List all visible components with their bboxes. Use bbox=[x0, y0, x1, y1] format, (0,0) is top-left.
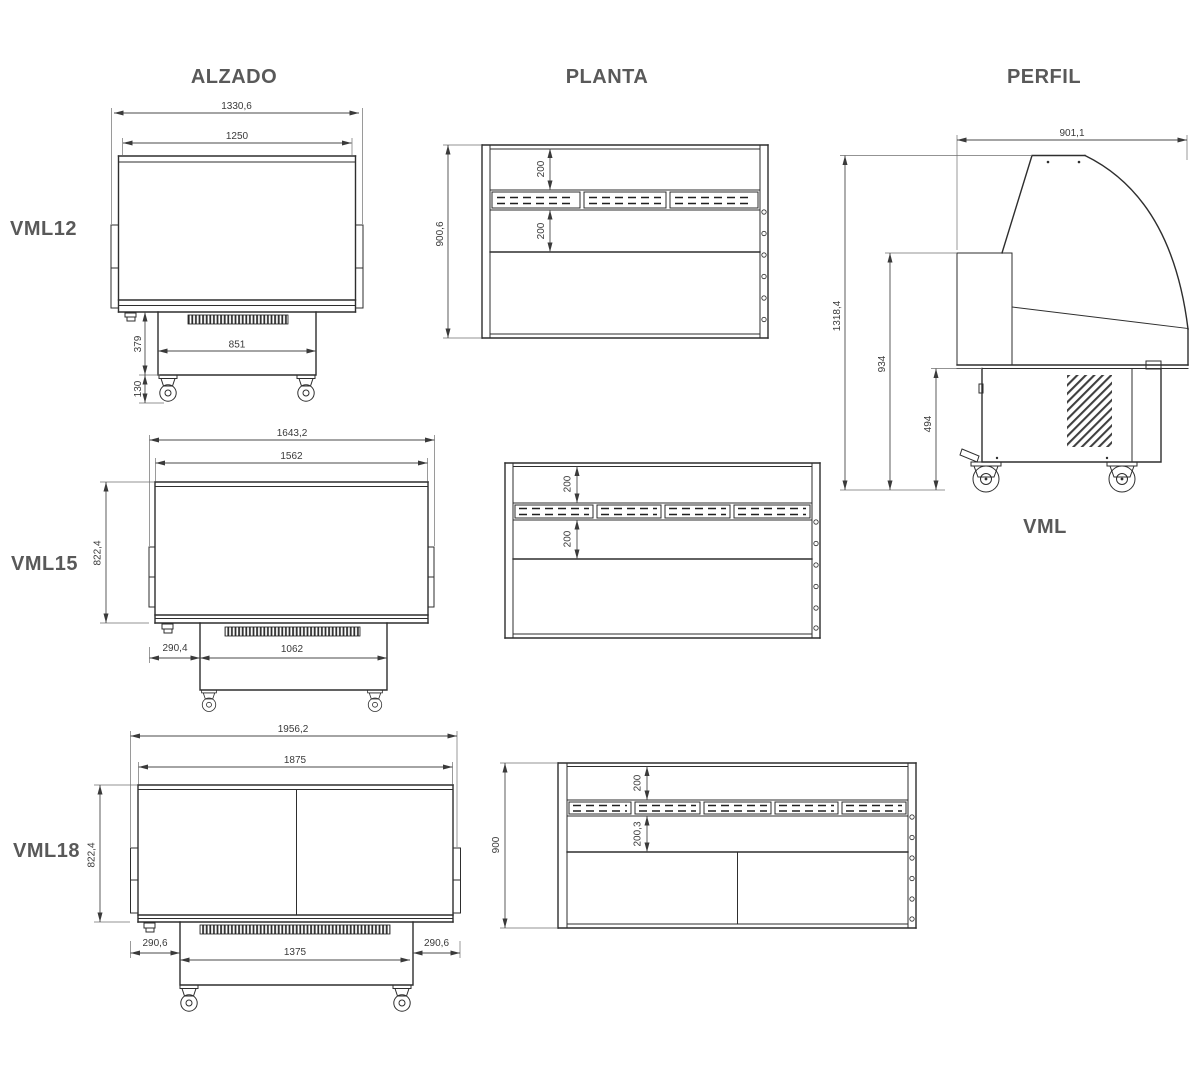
caster bbox=[368, 690, 383, 711]
dim-vml18-well-depth: 200,3 bbox=[633, 821, 644, 846]
dim-vml18-base-width: 1375 bbox=[284, 947, 307, 958]
side-bumper-left bbox=[111, 225, 119, 308]
dim-vml18-body-height: 822,4 bbox=[87, 842, 98, 867]
side-bumper-right bbox=[356, 225, 364, 308]
vml12-base bbox=[158, 312, 316, 401]
dim-vml15-display-width: 1562 bbox=[280, 451, 303, 462]
dim-vml18-display-width: 1875 bbox=[284, 755, 307, 766]
vml18-display-body bbox=[131, 785, 461, 932]
view-perfil: 901,1 bbox=[832, 128, 1188, 492]
dim-perfil-counter-height: 934 bbox=[877, 355, 888, 372]
vent-grille bbox=[225, 627, 360, 636]
compressor-vent bbox=[1067, 375, 1112, 447]
vml18-base bbox=[180, 922, 413, 1011]
dim-vml12-caster-height: 130 bbox=[133, 380, 144, 397]
dim-vml12-total-depth: 900,6 bbox=[435, 221, 446, 246]
dim-vml12-rear-ledge: 200 bbox=[536, 160, 547, 177]
dim-vml15-well-depth: 200 bbox=[563, 530, 574, 547]
dim-perfil-total-depth: 901,1 bbox=[1059, 128, 1084, 139]
caster bbox=[202, 690, 217, 711]
caster bbox=[393, 985, 411, 1011]
dim-vml18-rear-ledge: 200 bbox=[633, 774, 644, 791]
view-vml15-planta: 200 200 bbox=[505, 463, 820, 638]
dim-vml15-rear-ledge: 200 bbox=[563, 475, 574, 492]
dim-vml18-base-inset-right: 290,6 bbox=[424, 938, 449, 949]
vml12-display-body bbox=[111, 156, 363, 321]
dim-vml12-well-depth: 200 bbox=[536, 222, 547, 239]
dim-vml18-base-inset-left: 290,6 bbox=[142, 938, 167, 949]
caster bbox=[297, 375, 315, 401]
vml15-display-body bbox=[149, 482, 434, 633]
dim-vml12-base-height: 379 bbox=[133, 335, 144, 352]
vml15-hinge-holes bbox=[814, 520, 818, 630]
dim-vml15-base-inset: 290,4 bbox=[162, 643, 187, 654]
brake-lever bbox=[960, 449, 979, 462]
caster bbox=[971, 462, 1001, 492]
rear-panel bbox=[957, 253, 1012, 365]
view-vml12-planta: 900,6 200 200 bbox=[435, 145, 768, 338]
dim-vml12-base-width: 851 bbox=[229, 340, 246, 351]
vml18-hinge-holes bbox=[910, 815, 914, 921]
deck-line bbox=[1012, 307, 1188, 329]
vml12-hinge-holes bbox=[762, 210, 766, 322]
dim-vml18-total-depth: 900 bbox=[491, 836, 502, 853]
vml18-grille-strip bbox=[567, 800, 908, 816]
dim-vml12-total-width: 1330,6 bbox=[221, 101, 252, 112]
drain-fitting bbox=[144, 923, 155, 928]
dim-vml15-total-width: 1643,2 bbox=[277, 428, 308, 439]
vml15-base bbox=[200, 623, 387, 711]
vml15-grille-strip bbox=[513, 503, 812, 520]
dim-vml15-base-width: 1062 bbox=[281, 644, 304, 655]
view-vml18-planta: 900 200 200,3 bbox=[491, 763, 916, 928]
caster bbox=[159, 375, 177, 401]
dim-vml12-display-width: 1250 bbox=[226, 131, 249, 142]
drawing-linework: 1330,6 1250 bbox=[0, 0, 1200, 1080]
perfil-base bbox=[960, 361, 1161, 492]
dim-vml15-body-height: 822,4 bbox=[93, 540, 104, 565]
dim-vml18-total-width: 1956,2 bbox=[278, 724, 309, 735]
view-vml15-alzado: 1643,2 1562 822 bbox=[93, 428, 435, 711]
drain-fitting bbox=[125, 313, 136, 317]
vent-grille bbox=[200, 925, 390, 934]
dim-perfil-base-height: 494 bbox=[923, 415, 934, 432]
vml12-grille-strip bbox=[490, 190, 760, 210]
curved-glass bbox=[1085, 156, 1188, 330]
view-vml18-alzado: 1956,2 1875 bbox=[87, 724, 461, 1011]
vent-grille bbox=[188, 315, 288, 324]
drain-fitting bbox=[162, 624, 173, 629]
dim-perfil-total-height: 1318,4 bbox=[832, 300, 843, 331]
technical-drawing-sheet: ALZADO PLANTA PERFIL VML12 VML15 VML18 V… bbox=[0, 0, 1200, 1080]
perfil-body bbox=[957, 156, 1188, 369]
caster bbox=[1107, 462, 1137, 492]
view-vml12-alzado: 1330,6 1250 bbox=[111, 101, 363, 403]
caster bbox=[180, 985, 198, 1011]
